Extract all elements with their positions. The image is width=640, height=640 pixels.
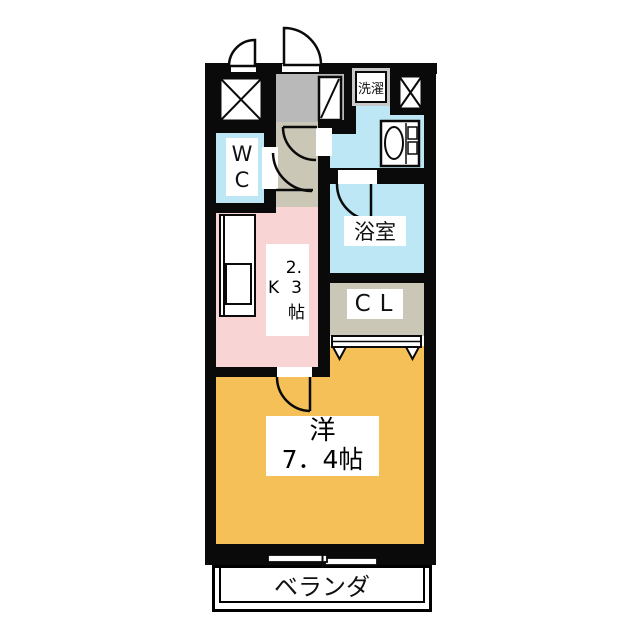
kitchen-label: 2. K 3 帖 [266,244,309,336]
bathroom-label: 浴室 [344,216,406,246]
wall-bath-closet [330,273,424,283]
wall-under-shoebox [318,120,344,134]
room-hallway [272,122,318,207]
wall-left [205,63,216,565]
floor-plan: WC 洗濯 浴室 CL 2. K 3 帖 洋 7．4帖 ベランダ [0,0,640,640]
kitchen-size-top: 2. [266,258,309,278]
room-washroom-lower [330,134,356,168]
wall-pipe-space-right [390,74,424,115]
veranda-label: ベランダ [252,568,392,600]
kitchen-type: K [268,278,279,298]
wall-wc-bottom [216,203,276,213]
wc-label: WC [226,138,258,196]
wall-hall-washroom [318,122,330,377]
laundry-label: 洗濯 [355,71,387,103]
main-room-type: 洋 [266,417,379,445]
kitchen-sink-icon [225,263,252,305]
wall-washroom-bath [330,168,424,184]
main-room-size: 7．4帖 [266,445,379,475]
wall-bottom [205,544,436,565]
wall-kitchen-bottom [216,367,330,377]
entrance-door-arc-icon [284,28,321,65]
wall-wc-right [264,133,276,213]
wall-right [424,63,436,565]
wall-pipe-space-left [216,74,276,133]
closet-label: CL [347,289,403,319]
kitchen-unit: 帖 [266,298,309,323]
wall-top [205,63,437,74]
main-room-label: 洋 7．4帖 [266,416,379,476]
kitchen-size-bottom: 3 [291,278,302,298]
room-entrance [272,74,344,122]
